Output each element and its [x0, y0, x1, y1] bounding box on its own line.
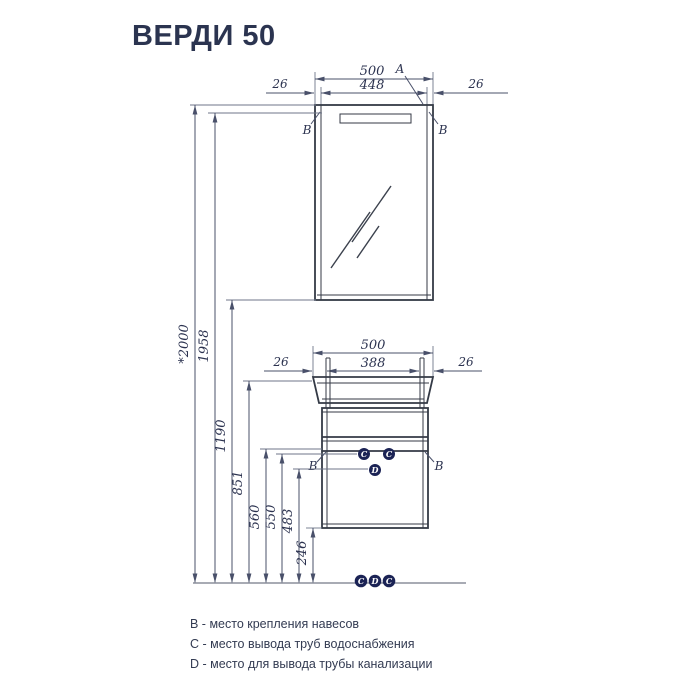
- vanity-width-value: 500: [361, 338, 386, 353]
- mirror-ref-a: A: [395, 62, 405, 76]
- vanity-drawing: 500 388 26 26 B: [264, 338, 482, 528]
- vanity-offset-right: 26: [457, 355, 474, 369]
- mirror-hinge-b-left: B: [302, 123, 312, 137]
- dim-483-value: 483: [281, 509, 296, 535]
- technical-drawing: ВЕРДИ 50 500 A 448 26 26: [0, 0, 700, 700]
- svg-text:C: C: [358, 576, 365, 586]
- mirror-reflection-hatch: [331, 186, 391, 268]
- dim-550-value: 550: [264, 505, 279, 530]
- vanity-hinge-b-left: B: [308, 459, 318, 473]
- mirror-offset-right: 26: [467, 77, 484, 91]
- mirror-ref-a-leader: [405, 76, 423, 104]
- dim-851-value: 851: [231, 471, 246, 496]
- mirror-offset-left: 26: [271, 77, 288, 91]
- spec-sheet: ВЕРДИ 50 500 A 448 26 26: [0, 0, 700, 700]
- vanity-hinge-b-right: B: [434, 459, 444, 473]
- legend-item-d: D - место для вывода трубы канализации: [190, 657, 432, 671]
- legend: B - место крепления навесов C - место вы…: [190, 617, 432, 671]
- legend-item-c: C - место вывода труб водоснабжения: [190, 637, 415, 651]
- mirror-width-value: 500: [360, 64, 385, 79]
- height-dimensions: *2000 1958 1190 851 560 550 483 246: [177, 105, 368, 583]
- mirror-drawing: 500 A 448 26 26 B B: [266, 62, 508, 300]
- dim-1190-value: 1190: [214, 419, 229, 452]
- page-title: ВЕРДИ 50: [132, 20, 276, 52]
- svg-text:C: C: [386, 449, 393, 459]
- vanity-inner-value: 388: [361, 356, 386, 371]
- dim-246-value: 246: [295, 541, 310, 567]
- svg-text:C: C: [361, 449, 368, 459]
- vanity-offset-left: 26: [272, 355, 289, 369]
- dim-2000-value: *2000: [177, 324, 192, 364]
- mirror-inner-value: 448: [359, 78, 385, 93]
- dim-1958-value: 1958: [197, 329, 212, 362]
- floor-pipe-markers: C D C: [355, 575, 396, 588]
- legend-item-b: B - место крепления навесов: [190, 617, 359, 631]
- svg-text:D: D: [371, 576, 379, 586]
- dim-560-value: 560: [248, 505, 263, 530]
- svg-text:C: C: [386, 576, 393, 586]
- mirror-light: [340, 114, 411, 123]
- mirror-hinge-b-right: B: [438, 123, 448, 137]
- mirror-body: [315, 105, 433, 300]
- svg-text:D: D: [371, 465, 379, 475]
- pipe-markers: C C D: [358, 448, 395, 476]
